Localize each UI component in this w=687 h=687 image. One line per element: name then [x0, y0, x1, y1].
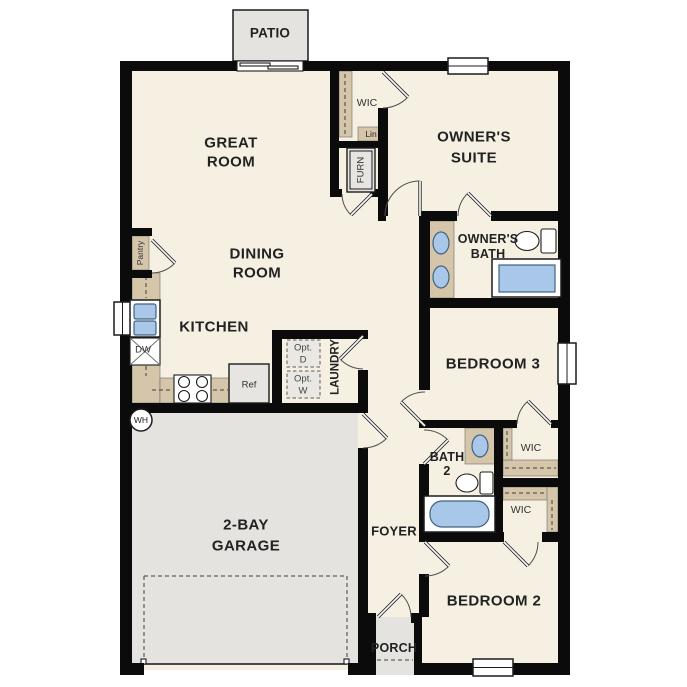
wall-segment: [419, 211, 457, 221]
wall-segment: [132, 228, 152, 236]
label-opt-washer: Opt.: [294, 374, 312, 384]
label-opt-dryer: Opt.: [294, 343, 312, 353]
bath2-toilet-tank: [480, 472, 493, 494]
label-dishwasher: DW: [135, 345, 151, 355]
kitchen-sink-basin: [134, 304, 156, 319]
label-owners-bath: BATH: [471, 248, 506, 261]
wall-segment: [419, 308, 430, 390]
label-wic-bed2: WIC: [511, 505, 531, 516]
wall-segment: [358, 448, 368, 675]
label-patio: PATIO: [250, 26, 290, 40]
wall-segment: [120, 61, 237, 71]
stove-burner: [197, 377, 208, 388]
wall-segment: [494, 478, 570, 487]
garage-floor: [132, 408, 358, 665]
wall-segment: [303, 61, 448, 71]
bath2-sink: [472, 435, 488, 457]
wall-segment: [120, 335, 132, 675]
stove-burner: [179, 377, 190, 388]
owner-vanity-sink: [433, 232, 449, 254]
wall-segment: [419, 532, 504, 542]
label-bedroom2: BEDROOM 2: [447, 594, 541, 609]
label-linen: Lin: [365, 130, 376, 139]
wall-segment: [272, 330, 282, 403]
wall-segment: [422, 663, 473, 675]
label-garage: 2-BAY: [223, 518, 269, 533]
label-foyer: FOYER: [371, 525, 417, 538]
owner-toilet-bowl: [515, 232, 539, 251]
owner-vanity-sink: [433, 266, 449, 288]
label-refrigerator: Ref: [242, 380, 257, 390]
floor-plan-drawing: [0, 0, 687, 687]
label-owners-suite: SUITE: [451, 151, 497, 166]
label-bath2: 2: [443, 465, 450, 478]
patio-slider-panel: [268, 66, 298, 69]
label-opt-washer: W: [299, 386, 308, 396]
wall-segment: [419, 298, 570, 308]
label-pantry: Pantry: [136, 241, 145, 266]
label-bedroom3: BEDROOM 3: [446, 357, 540, 372]
patio-slider-panel: [240, 63, 270, 66]
wall-segment: [419, 221, 430, 305]
label-water-heater: WH: [134, 416, 148, 425]
wall-segment: [120, 61, 132, 302]
wall-segment: [488, 61, 570, 71]
owner-shower-pan: [499, 265, 555, 292]
kitchen-sink-basin: [134, 321, 156, 335]
label-opt-dryer: D: [300, 355, 307, 365]
label-great-room: ROOM: [207, 155, 255, 170]
label-dining-room: DINING: [230, 247, 285, 262]
label-porch: PORCH: [371, 642, 417, 655]
label-great-room: GREAT: [204, 136, 257, 151]
label-laundry: LAUNDRY: [330, 339, 342, 395]
label-kitchen: KITCHEN: [179, 320, 248, 335]
wall-segment: [491, 211, 558, 221]
label-furnace: FURN: [356, 157, 366, 183]
wall-segment: [272, 330, 368, 339]
bath2-tub: [430, 501, 489, 527]
owner-toilet-tank: [541, 229, 556, 253]
label-wic-bed3: WIC: [521, 443, 541, 454]
wall-segment: [132, 270, 152, 278]
stove-burner: [197, 391, 208, 402]
wall-segment: [330, 71, 339, 196]
label-owners-bath: OWNER'S: [458, 233, 519, 246]
wall-segment: [513, 663, 570, 675]
label-wic-owner: WIC: [357, 98, 377, 109]
wall-segment: [419, 574, 429, 617]
label-bath2: BATH: [430, 451, 465, 464]
wall-segment: [419, 420, 517, 428]
wall-segment: [378, 108, 388, 216]
wall-segment: [542, 532, 570, 542]
label-dining-room: ROOM: [233, 266, 281, 281]
wall-segment: [120, 663, 144, 675]
stove-burner: [179, 391, 190, 402]
wall-segment: [551, 420, 570, 428]
floor-plan: PATIO GREAT ROOM WIC Lin FURN OWNER'S SU…: [0, 0, 687, 687]
label-garage: GARAGE: [212, 539, 280, 554]
wall-segment: [120, 403, 368, 413]
label-owners-suite: OWNER'S: [437, 130, 511, 145]
wall-segment: [358, 370, 368, 413]
bath2-toilet-bowl: [456, 474, 478, 492]
wall-segment: [330, 189, 342, 197]
wall-segment: [358, 330, 368, 336]
